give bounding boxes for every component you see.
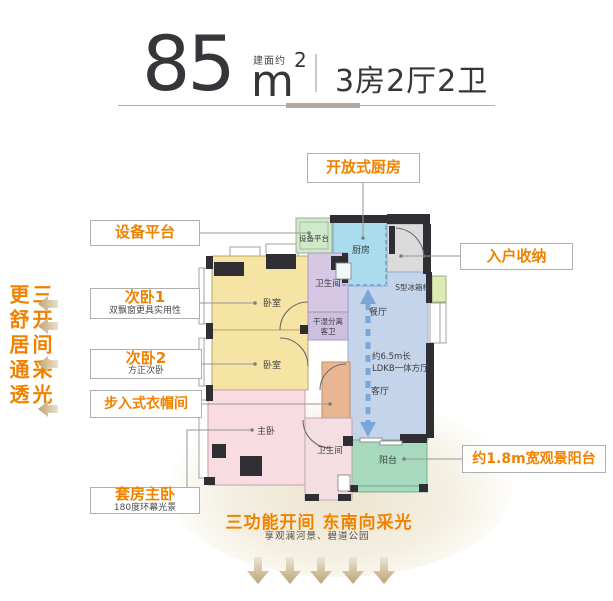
callout-entry-storage: 入户收纳	[460, 243, 573, 270]
room-closet	[322, 362, 350, 418]
callout-title: 约1.8m宽观景阳台	[472, 452, 595, 467]
label-living: 客厅	[371, 385, 389, 397]
callout-title: 入户收纳	[486, 249, 546, 265]
label-ldk-line2: LDKB一体方厅	[372, 363, 429, 374]
callout-title: 设备平台	[115, 225, 175, 241]
label-fridge-cabinet: S型冰箱柜	[395, 282, 430, 292]
callout-title: 步入式衣帽间	[104, 397, 188, 412]
callout-equipment-platform: 设备平台	[90, 220, 200, 246]
label-bedroom1: 卧室	[263, 297, 281, 309]
callout-subtitle: 方正次卧	[128, 366, 164, 377]
label-balcony: 阳台	[379, 454, 397, 466]
label-master: 主卧	[257, 425, 275, 437]
room-balcony	[348, 440, 427, 492]
room-bedroom2	[212, 330, 308, 390]
label-kitchen: 厨房	[352, 244, 370, 256]
label-bath2: 卫生间	[317, 445, 343, 456]
callout-bedroom1: 次卧1 双飘窗更具实用性	[90, 288, 200, 319]
label-bedroom2: 卧室	[263, 359, 281, 371]
label-dining: 餐厅	[369, 306, 387, 318]
callout-bedroom2: 次卧2 方正次卧	[90, 349, 202, 379]
callout-title: 套房主卧	[115, 487, 175, 503]
room-fridge-cabinet	[432, 276, 446, 302]
callout-view-balcony: 约1.8m宽观景阳台	[462, 445, 606, 473]
page: 85 建面约 m 2 3房2厅2卫 三开间采光 更舒居通透	[0, 0, 613, 601]
label-equipment-platform: 设备平台	[299, 233, 329, 243]
label-guest-bath1: 干湿分离	[313, 316, 343, 326]
label-guest-bath2: 客卫	[321, 326, 336, 336]
callout-walkin-closet: 步入式衣帽间	[90, 390, 202, 418]
callout-subtitle: 180度环幕光景	[114, 503, 176, 514]
callout-title: 次卧2	[126, 351, 166, 367]
label-bath1: 卫生间	[315, 278, 341, 289]
callout-open-kitchen: 开放式厨房	[307, 153, 420, 183]
callout-title: 开放式厨房	[326, 160, 401, 176]
callout-master-suite: 套房主卧 180度环幕光景	[90, 487, 200, 514]
footer-subline: 享观澜河景、碧道公园	[264, 528, 369, 542]
label-ldk-line1: 约6.5m长	[372, 351, 411, 362]
callout-title: 次卧1	[125, 290, 165, 306]
callout-subtitle: 双飘窗更具实用性	[109, 306, 181, 317]
